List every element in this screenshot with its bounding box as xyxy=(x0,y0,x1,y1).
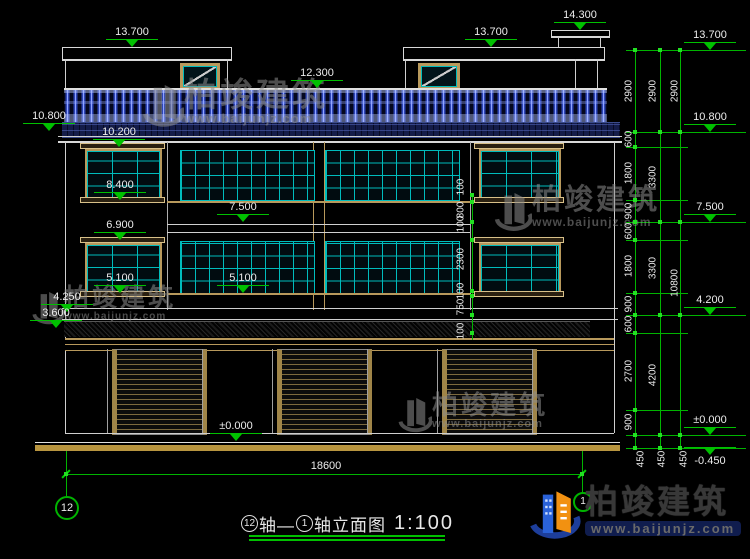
dim-label: 3300 xyxy=(648,257,659,279)
window-right-2f xyxy=(479,243,561,295)
dim-label: 100 xyxy=(456,179,467,196)
dim-tick xyxy=(658,220,662,224)
elev-marker-left-cornice: 10.800 xyxy=(23,110,75,131)
recess-edge-right xyxy=(470,142,471,310)
dim-label: 900 xyxy=(624,203,635,220)
dim-tick xyxy=(633,198,637,202)
elev-marker-right-base: -0.450 xyxy=(684,446,736,467)
dim-label: 1800 xyxy=(624,162,635,184)
dim-tick xyxy=(470,289,474,293)
door-jamb-2 xyxy=(202,349,203,433)
title-axis-bubble-12: 12 xyxy=(241,515,258,532)
dim-label: 450 xyxy=(636,451,647,468)
dim-label: 100 xyxy=(456,216,467,233)
elev-marker-right-cornice: 10.800 xyxy=(684,111,736,132)
stair-bulkhead-wall xyxy=(558,37,601,47)
dim-tick xyxy=(633,331,637,335)
dim-label: 450 xyxy=(657,451,668,468)
dim-row xyxy=(626,222,746,223)
axis-number: 12 xyxy=(61,502,73,514)
dim-label: 1800 xyxy=(624,255,635,277)
dim-tick xyxy=(678,433,682,437)
elev-marker-floor3: 7.500 xyxy=(217,201,269,222)
elev-marker-win2-sill-left: 5.100 xyxy=(94,272,146,293)
dim-label: 3300 xyxy=(648,166,659,188)
dim-line-right-2 xyxy=(660,50,661,448)
dim-tick xyxy=(633,48,637,52)
dim-row xyxy=(626,132,746,133)
dim-label: 450 xyxy=(679,451,690,468)
dim-tick xyxy=(678,220,682,224)
dim-tick xyxy=(678,130,682,134)
penthouse-window-left xyxy=(180,63,220,90)
dim-row xyxy=(626,50,746,51)
dim-tick xyxy=(580,472,584,476)
title-axis-bubble-1: 1 xyxy=(296,515,313,532)
dim-row xyxy=(626,315,746,316)
dim-tick xyxy=(470,238,474,242)
elev-marker-roof-left: 13.700 xyxy=(106,26,158,47)
dim-line-mid xyxy=(472,193,473,340)
dim-tick xyxy=(470,294,474,298)
dim-tick xyxy=(658,313,662,317)
elev-marker-terrace: 12.300 xyxy=(291,67,343,88)
dim-tick xyxy=(633,238,637,242)
dim-label: 600 xyxy=(624,316,635,333)
roller-door-2 xyxy=(277,349,372,435)
dim-label: 2900 xyxy=(624,80,635,102)
dim-tick xyxy=(658,446,662,450)
dim-label: 10800 xyxy=(670,269,681,297)
elev-marker-right-ground: ±0.000 xyxy=(684,414,736,435)
elev-marker-win3-head: 10.200 xyxy=(93,126,145,147)
band-sill-line-2f xyxy=(167,293,470,295)
window-sill-right-3f xyxy=(474,197,564,203)
door-jamb-1 xyxy=(107,349,108,433)
elev-marker-win2-sill-mid: 5.100 xyxy=(217,272,269,293)
dim-tick xyxy=(470,200,474,204)
elev-marker-win3-sill: 8.400 xyxy=(94,179,146,200)
elev-marker-right-ledge: 4.200 xyxy=(684,294,736,315)
dim-label: 100 xyxy=(456,283,467,300)
elev-marker-win2-head: 6.900 xyxy=(94,219,146,240)
total-width-label: 18600 xyxy=(311,460,342,472)
elev-marker-bulkhead: 14.300 xyxy=(554,9,606,30)
dim-tick xyxy=(678,48,682,52)
door-jamb-6 xyxy=(532,349,533,433)
parapet-ledge xyxy=(62,308,618,320)
ground-line xyxy=(35,442,620,443)
dim-tick xyxy=(470,313,474,317)
dim-tick xyxy=(678,313,682,317)
floor-slab-band xyxy=(167,224,470,233)
door-jamb-4 xyxy=(367,349,368,433)
window-band-3f-a xyxy=(180,150,315,202)
dim-label: 4200 xyxy=(648,364,659,386)
door-jamb-5 xyxy=(437,349,438,433)
roller-door-3 xyxy=(442,349,537,435)
title-text: 轴— xyxy=(259,511,295,536)
ground-beam xyxy=(35,445,620,451)
dim-label: 2900 xyxy=(648,80,659,102)
dim-tick xyxy=(470,331,474,335)
dim-line-right-1 xyxy=(635,50,636,448)
dim-label: 2300 xyxy=(456,248,467,270)
company-logo-url: www.baijunjz.com xyxy=(585,521,741,536)
window-right-3f xyxy=(479,149,561,201)
dim-label: 900 xyxy=(624,296,635,313)
dim-tick xyxy=(658,48,662,52)
dim-tick xyxy=(658,130,662,134)
elev-marker-roof-right: 13.700 xyxy=(465,26,517,47)
company-logo: 柏竣建筑 www.baijunjz.com xyxy=(527,485,741,549)
dim-tick xyxy=(678,446,682,450)
band-sill-line-3f xyxy=(167,201,470,203)
dim-tick xyxy=(633,408,637,412)
drawing-title: 12 轴— 1 轴立面图 1:100 xyxy=(240,511,454,536)
window-band-2f-b xyxy=(325,241,460,295)
dim-tick xyxy=(633,291,637,295)
penthouse-window-right xyxy=(418,63,460,90)
roof-balustrade xyxy=(64,88,607,126)
dim-tick xyxy=(658,433,662,437)
roller-door-1 xyxy=(112,349,207,435)
plinth-line xyxy=(65,433,614,434)
company-logo-brand: 柏竣建筑 xyxy=(585,485,741,520)
elevation-drawing-canvas: 18600 12 1 13.700 14.300 13.700 12.300 1… xyxy=(0,0,750,559)
dim-row xyxy=(626,435,746,436)
window-band-3f-b xyxy=(325,150,460,202)
dim-line-right-3 xyxy=(680,50,681,448)
dim-tick xyxy=(633,130,637,134)
dim-tick xyxy=(64,472,68,476)
dim-label: 750 xyxy=(456,299,467,316)
dim-tick xyxy=(633,433,637,437)
dim-line-total-width xyxy=(66,474,582,475)
facade-wall-right xyxy=(614,142,615,433)
dim-label: 100 xyxy=(456,323,467,340)
dim-tick xyxy=(470,193,474,197)
window-sill-right-2f xyxy=(474,291,564,297)
elev-marker-ledge-bottom: 3.600 xyxy=(30,307,82,328)
dim-label: 900 xyxy=(624,414,635,431)
door-jamb-3 xyxy=(272,349,273,433)
dim-label: 600 xyxy=(624,223,635,240)
slab-edge-texture xyxy=(64,321,590,337)
elev-marker-ground: ±0.000 xyxy=(210,420,262,441)
dim-tick xyxy=(633,145,637,149)
elev-marker-right-roof: 13.700 xyxy=(684,29,736,50)
title-text: 轴立面图 xyxy=(314,511,386,536)
title-scale: 1:100 xyxy=(394,512,454,535)
dim-label: 2700 xyxy=(624,360,635,382)
title-underline xyxy=(249,535,445,541)
axis-bubble-12: 12 xyxy=(55,496,79,520)
dim-tick xyxy=(633,220,637,224)
company-logo-icon xyxy=(527,485,581,549)
dim-tick xyxy=(633,446,637,450)
elev-marker-right-floor3: 7.500 xyxy=(684,201,736,222)
dim-label: 2900 xyxy=(670,80,681,102)
dim-tick xyxy=(470,220,474,224)
dim-tick xyxy=(633,313,637,317)
facade-wall-left xyxy=(65,142,66,433)
